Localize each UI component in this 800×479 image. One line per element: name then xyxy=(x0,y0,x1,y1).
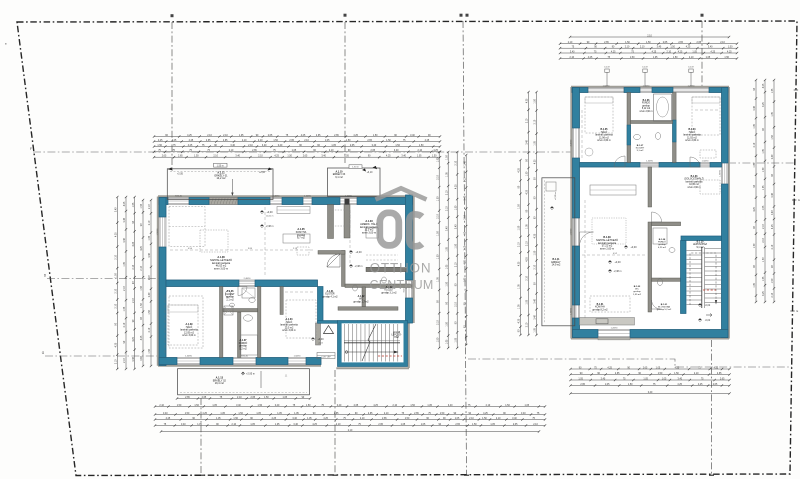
svg-text:3,40: 3,40 xyxy=(133,356,135,361)
svg-text:4,25: 4,25 xyxy=(373,405,378,407)
svg-text:1,50: 1,50 xyxy=(628,384,633,386)
svg-text:4,25: 4,25 xyxy=(116,342,118,347)
svg-text:4,25: 4,25 xyxy=(166,418,171,420)
svg-text:2,10: 2,10 xyxy=(763,237,765,242)
svg-text:2,10: 2,10 xyxy=(647,35,652,37)
svg-text:4,25: 4,25 xyxy=(433,150,438,152)
svg-text:1,05: 1,05 xyxy=(212,405,217,407)
svg-text:4,25: 4,25 xyxy=(141,335,143,340)
svg-text:3,40: 3,40 xyxy=(521,413,526,415)
svg-text:2,10: 2,10 xyxy=(437,214,439,219)
svg-text:3,40: 3,40 xyxy=(570,51,575,53)
svg-text:+0,00: +0,00 xyxy=(355,251,362,254)
svg-text:2,65: 2,65 xyxy=(368,413,373,415)
svg-text:1,50: 1,50 xyxy=(455,243,457,248)
svg-text:1,50: 1,50 xyxy=(472,424,477,426)
svg-text:3,40: 3,40 xyxy=(372,145,377,147)
svg-text:2,10: 2,10 xyxy=(329,150,334,152)
svg-text:4,25: 4,25 xyxy=(172,140,177,142)
svg-text:14x19: 14x19 xyxy=(642,67,648,69)
svg-text:2,10: 2,10 xyxy=(568,42,573,44)
svg-text:-2,38 m: -2,38 m xyxy=(265,225,273,228)
svg-text:1,05: 1,05 xyxy=(256,413,261,415)
svg-text:1,05: 1,05 xyxy=(294,413,299,415)
svg-text:1,50 m: 1,50 m xyxy=(217,165,224,167)
svg-text:1,50: 1,50 xyxy=(149,348,151,353)
svg-text:4,25: 4,25 xyxy=(763,83,765,88)
svg-text:CENTRUM: CENTRUM xyxy=(370,278,434,292)
svg-text:4,25: 4,25 xyxy=(202,413,207,415)
svg-text:2,10: 2,10 xyxy=(223,135,228,137)
svg-text:4,25: 4,25 xyxy=(519,318,521,323)
svg-text:1,05: 1,05 xyxy=(149,235,151,240)
svg-text:2,65: 2,65 xyxy=(354,405,359,407)
svg-text:4,25: 4,25 xyxy=(158,140,163,142)
svg-text:2,10: 2,10 xyxy=(360,418,365,420)
svg-text:1,50: 1,50 xyxy=(346,140,351,142)
svg-text:1,05: 1,05 xyxy=(490,424,495,426)
svg-text:1,05: 1,05 xyxy=(275,424,280,426)
svg-text:2,65: 2,65 xyxy=(202,397,207,399)
svg-text:2,10: 2,10 xyxy=(229,150,234,152)
svg-text:14x19: 14x19 xyxy=(688,67,694,69)
svg-text:1,50: 1,50 xyxy=(238,413,243,415)
svg-text:2,10: 2,10 xyxy=(464,245,466,250)
svg-text:2,10: 2,10 xyxy=(116,254,118,259)
svg-text:1,05: 1,05 xyxy=(763,205,765,210)
svg-text:2,10: 2,10 xyxy=(133,298,135,303)
svg-text:-0,02: -0,02 xyxy=(705,304,711,307)
svg-text:1,50: 1,50 xyxy=(419,145,424,147)
svg-text:3,40: 3,40 xyxy=(448,405,453,407)
svg-text:2,10: 2,10 xyxy=(455,160,457,165)
svg-text:2,10: 2,10 xyxy=(141,265,143,270)
svg-text:1,50: 1,50 xyxy=(233,418,238,420)
svg-text:2,10: 2,10 xyxy=(763,224,765,229)
svg-text:1,50: 1,50 xyxy=(763,167,765,172)
svg-text:2,65: 2,65 xyxy=(223,140,228,142)
svg-text:2,65: 2,65 xyxy=(252,150,257,152)
svg-text:2,10: 2,10 xyxy=(116,288,118,293)
svg-text:4,25: 4,25 xyxy=(686,47,691,49)
svg-text:3,40: 3,40 xyxy=(708,47,713,49)
svg-text:1,05: 1,05 xyxy=(446,339,448,344)
svg-text:2,65: 2,65 xyxy=(185,397,190,399)
svg-text:3,40: 3,40 xyxy=(464,195,466,200)
svg-text:+2,95 m: +2,95 m xyxy=(246,372,255,375)
svg-text:1,50/90: 1,50/90 xyxy=(157,228,159,236)
svg-text:1,50: 1,50 xyxy=(437,196,439,201)
svg-text:2,10: 2,10 xyxy=(116,359,118,364)
svg-text:2,10: 2,10 xyxy=(348,430,353,432)
svg-text:1,50: 1,50 xyxy=(763,257,765,262)
svg-text:1,50: 1,50 xyxy=(395,145,400,147)
svg-text:2,10: 2,10 xyxy=(535,264,537,269)
svg-text:1,05: 1,05 xyxy=(455,337,457,342)
svg-text:2,65: 2,65 xyxy=(643,367,648,369)
svg-text:1,50: 1,50 xyxy=(446,281,448,286)
svg-text:1,50: 1,50 xyxy=(258,405,263,407)
svg-text:2,10: 2,10 xyxy=(772,244,774,249)
svg-text:1,50: 1,50 xyxy=(527,171,529,176)
svg-text:1,50: 1,50 xyxy=(670,47,675,49)
svg-text:4,25: 4,25 xyxy=(772,224,774,229)
svg-text:1,50: 1,50 xyxy=(505,405,510,407)
svg-text:3,40: 3,40 xyxy=(527,139,529,144)
svg-text:4,25: 4,25 xyxy=(272,418,277,420)
svg-text:+0,00: +0,00 xyxy=(614,261,621,264)
svg-text:2,65: 2,65 xyxy=(334,413,339,415)
svg-text:4,25: 4,25 xyxy=(519,261,521,266)
svg-text:1,50/90: 1,50/90 xyxy=(702,161,710,163)
svg-text:2,10: 2,10 xyxy=(418,150,423,152)
svg-text:4,25: 4,25 xyxy=(133,336,135,341)
svg-text:1,05: 1,05 xyxy=(706,57,711,59)
svg-text:3,40: 3,40 xyxy=(149,252,151,257)
svg-text:2,65: 2,65 xyxy=(316,135,321,137)
svg-text:-0,02: -0,02 xyxy=(705,319,711,322)
svg-text:3,40: 3,40 xyxy=(262,145,267,147)
svg-text:3,40: 3,40 xyxy=(772,154,774,159)
svg-text:4,25: 4,25 xyxy=(188,145,193,147)
svg-text:4,25: 4,25 xyxy=(763,291,765,296)
svg-text:4,25: 4,25 xyxy=(187,135,192,137)
svg-text:2,10: 2,10 xyxy=(149,220,151,225)
svg-text:3,40: 3,40 xyxy=(124,237,126,242)
svg-text:2,10: 2,10 xyxy=(464,177,466,182)
svg-text:2,65: 2,65 xyxy=(678,42,683,44)
svg-text:4,25: 4,25 xyxy=(323,418,328,420)
svg-text:1,05: 1,05 xyxy=(527,224,529,229)
svg-text:1,05: 1,05 xyxy=(216,418,221,420)
svg-text:1,50: 1,50 xyxy=(157,145,162,147)
svg-text:2,40/90: 2,40/90 xyxy=(273,196,281,198)
svg-text:1,50: 1,50 xyxy=(141,203,143,208)
svg-text:3,40: 3,40 xyxy=(163,413,168,415)
svg-text:2,10: 2,10 xyxy=(527,322,529,327)
svg-text:-2,38 m: -2,38 m xyxy=(613,270,621,273)
svg-text:2,10: 2,10 xyxy=(237,397,242,399)
svg-text:4,25: 4,25 xyxy=(124,201,126,206)
svg-text:1,50: 1,50 xyxy=(446,155,448,160)
svg-text:+2,95: +2,95 xyxy=(177,174,184,176)
svg-text:4,25: 4,25 xyxy=(425,140,430,142)
svg-text:±0,00 m: ±0,00 m xyxy=(266,216,274,218)
svg-text:4,25: 4,25 xyxy=(527,98,529,103)
svg-text:1,05: 1,05 xyxy=(220,413,225,415)
svg-text:1,50/90: 1,50/90 xyxy=(185,356,193,358)
svg-text:1,05: 1,05 xyxy=(754,123,756,128)
svg-text:2,65: 2,65 xyxy=(162,156,167,158)
svg-text:2,10: 2,10 xyxy=(149,204,151,209)
svg-text:1,05: 1,05 xyxy=(446,264,448,269)
svg-text:1,50: 1,50 xyxy=(405,418,410,420)
svg-text:+0,00: +0,00 xyxy=(630,246,637,249)
svg-text:2,10: 2,10 xyxy=(248,145,253,147)
svg-text:2,10: 2,10 xyxy=(519,242,521,247)
svg-text:A.1.07FÜRDŐgreslap5,2 m2: A.1.07FÜRDŐgreslap5,2 m2 xyxy=(239,339,248,350)
svg-text:1,50: 1,50 xyxy=(482,418,487,420)
svg-text:2,10: 2,10 xyxy=(527,118,529,123)
svg-text:2,65: 2,65 xyxy=(206,140,211,142)
svg-text:E: E xyxy=(797,309,799,313)
svg-text:1,05: 1,05 xyxy=(437,277,439,282)
svg-text:1,50: 1,50 xyxy=(306,405,311,407)
svg-text:1,05: 1,05 xyxy=(464,277,466,282)
svg-text:2,10: 2,10 xyxy=(124,322,126,327)
svg-text:1,50/90: 1,50/90 xyxy=(603,86,611,88)
svg-text:1,05: 1,05 xyxy=(772,88,774,93)
svg-text:4,25: 4,25 xyxy=(607,367,612,369)
svg-text:2,10: 2,10 xyxy=(446,190,448,195)
svg-text:1,05: 1,05 xyxy=(250,424,255,426)
svg-text:2,10: 2,10 xyxy=(124,358,126,363)
svg-text:2,10: 2,10 xyxy=(667,51,672,53)
svg-text:1,50: 1,50 xyxy=(519,204,521,209)
svg-text:4,25: 4,25 xyxy=(678,51,683,53)
svg-text:1,05: 1,05 xyxy=(763,276,765,281)
svg-text:4,25: 4,25 xyxy=(455,184,457,189)
svg-text:2,10: 2,10 xyxy=(207,135,212,137)
svg-text:1,50: 1,50 xyxy=(194,156,199,158)
svg-text:2,10: 2,10 xyxy=(625,47,630,49)
svg-text:4,25: 4,25 xyxy=(116,232,118,237)
svg-text:1,20/90: 1,20/90 xyxy=(688,86,696,88)
svg-text:2,65: 2,65 xyxy=(268,135,273,137)
svg-text:2,10: 2,10 xyxy=(772,292,774,297)
svg-text:2,10: 2,10 xyxy=(336,424,341,426)
svg-text:1,05: 1,05 xyxy=(417,156,422,158)
svg-text:3,40: 3,40 xyxy=(648,392,653,394)
svg-text:2,65: 2,65 xyxy=(382,418,387,420)
svg-text:2,10: 2,10 xyxy=(116,303,118,308)
svg-text:3,40: 3,40 xyxy=(464,160,466,165)
svg-text:2,65: 2,65 xyxy=(289,140,294,142)
svg-text:2,10: 2,10 xyxy=(437,175,439,180)
svg-text:1,50: 1,50 xyxy=(754,243,756,248)
svg-text:3,40: 3,40 xyxy=(235,156,240,158)
svg-text:OTTHON: OTTHON xyxy=(370,260,432,275)
svg-text:1,50: 1,50 xyxy=(373,135,378,137)
svg-text:4,25: 4,25 xyxy=(763,102,765,107)
svg-text:1,05: 1,05 xyxy=(535,140,537,145)
svg-text:2,65: 2,65 xyxy=(251,397,256,399)
svg-text:2,65: 2,65 xyxy=(334,135,339,137)
svg-text:1,05: 1,05 xyxy=(446,172,448,177)
svg-text:3,40: 3,40 xyxy=(678,378,683,380)
svg-text:2,10: 2,10 xyxy=(535,119,537,124)
svg-text:4,25: 4,25 xyxy=(588,57,593,59)
svg-text:2,10: 2,10 xyxy=(258,156,263,158)
svg-text:1,50: 1,50 xyxy=(437,254,439,259)
svg-text:1,05: 1,05 xyxy=(763,148,765,153)
svg-text:1,50: 1,50 xyxy=(446,321,448,326)
svg-text:1,50: 1,50 xyxy=(728,47,733,49)
svg-text:2,65: 2,65 xyxy=(350,145,355,147)
svg-text:1,05: 1,05 xyxy=(754,162,756,167)
svg-text:1,50/90: 1,50/90 xyxy=(570,228,572,236)
svg-text:+2,95: +2,95 xyxy=(259,172,266,174)
svg-text:3,40: 3,40 xyxy=(124,217,126,222)
svg-text:2,10: 2,10 xyxy=(133,264,135,269)
svg-text:2,65: 2,65 xyxy=(720,378,725,380)
svg-text:4,25: 4,25 xyxy=(677,384,682,386)
svg-text:3,40: 3,40 xyxy=(535,314,537,319)
svg-text:F: F xyxy=(30,147,32,151)
svg-text:1,05: 1,05 xyxy=(344,156,349,158)
svg-text:2,10: 2,10 xyxy=(384,413,389,415)
svg-text:1,50/90: 1,50/90 xyxy=(570,307,572,315)
svg-text:1,50: 1,50 xyxy=(264,397,269,399)
svg-text:1,05: 1,05 xyxy=(325,140,330,142)
svg-text:1,50: 1,50 xyxy=(772,134,774,139)
svg-text:2,10: 2,10 xyxy=(720,42,725,44)
svg-text:1,50: 1,50 xyxy=(185,413,190,415)
svg-text:3,40: 3,40 xyxy=(293,424,298,426)
svg-text:2,65: 2,65 xyxy=(371,150,376,152)
svg-text:1,50: 1,50 xyxy=(673,57,678,59)
svg-text:3,40: 3,40 xyxy=(772,192,774,197)
svg-text:4,25: 4,25 xyxy=(711,51,716,53)
svg-text:+3,10: +3,10 xyxy=(367,172,374,174)
svg-text:2,10: 2,10 xyxy=(232,424,237,426)
svg-text:2,10: 2,10 xyxy=(689,57,694,59)
svg-text:1,50: 1,50 xyxy=(273,140,278,142)
svg-text:4,25: 4,25 xyxy=(611,51,616,53)
svg-text:3,40: 3,40 xyxy=(141,356,143,361)
svg-text:90/2,40: 90/2,40 xyxy=(241,356,249,358)
svg-text:2,10: 2,10 xyxy=(527,241,529,246)
svg-text:2,65: 2,65 xyxy=(178,156,183,158)
svg-text:4,25: 4,25 xyxy=(527,189,529,194)
svg-text:+0,00: +0,00 xyxy=(317,338,324,341)
svg-text:4,25: 4,25 xyxy=(386,156,391,158)
svg-text:1,50: 1,50 xyxy=(410,405,415,407)
svg-text:4,25: 4,25 xyxy=(483,413,488,415)
svg-text:4,25: 4,25 xyxy=(527,257,529,262)
svg-text:1,05: 1,05 xyxy=(283,397,288,399)
svg-text:1,50: 1,50 xyxy=(177,405,182,407)
svg-text:2,10: 2,10 xyxy=(640,47,645,49)
svg-text:2,10: 2,10 xyxy=(437,320,439,325)
svg-text:3,40: 3,40 xyxy=(657,47,662,49)
svg-text:2,65: 2,65 xyxy=(717,373,722,375)
svg-text:1,50 m: 1,50 m xyxy=(352,167,359,169)
svg-text:2,10: 2,10 xyxy=(149,275,151,280)
svg-text:4,25: 4,25 xyxy=(535,159,537,164)
svg-text:1,05: 1,05 xyxy=(653,57,658,59)
svg-text:1,50: 1,50 xyxy=(772,278,774,283)
svg-text:2,65: 2,65 xyxy=(713,384,718,386)
svg-text:1,05: 1,05 xyxy=(133,202,135,207)
svg-text:1,50: 1,50 xyxy=(455,205,457,210)
svg-text:1,05: 1,05 xyxy=(643,378,648,380)
svg-text:4,25: 4,25 xyxy=(519,167,521,172)
svg-text:2,10: 2,10 xyxy=(754,142,756,147)
svg-text:+2,95 m: +2,95 m xyxy=(555,192,557,200)
svg-text:1,05: 1,05 xyxy=(527,299,529,304)
svg-text:2,10: 2,10 xyxy=(570,57,575,59)
svg-text:2,65: 2,65 xyxy=(580,384,585,386)
svg-text:1,05: 1,05 xyxy=(427,405,432,407)
svg-text:1,05: 1,05 xyxy=(277,413,282,415)
svg-text:2,10: 2,10 xyxy=(446,206,448,211)
svg-text:2,10: 2,10 xyxy=(242,140,247,142)
svg-text:1,05: 1,05 xyxy=(525,405,530,407)
svg-text:1,05: 1,05 xyxy=(578,378,583,380)
svg-text:1,50: 1,50 xyxy=(437,337,439,342)
svg-text:4,25: 4,25 xyxy=(141,245,143,250)
svg-text:1,05: 1,05 xyxy=(124,306,126,311)
svg-text:1,50: 1,50 xyxy=(141,303,143,308)
svg-text:3,40: 3,40 xyxy=(446,226,448,231)
svg-text:1,50: 1,50 xyxy=(287,156,292,158)
svg-text:1,50: 1,50 xyxy=(149,309,151,314)
svg-text:2,10: 2,10 xyxy=(496,418,501,420)
svg-text:1,50: 1,50 xyxy=(519,225,521,230)
svg-text:1,50: 1,50 xyxy=(630,57,635,59)
svg-text:2,10: 2,10 xyxy=(694,373,699,375)
svg-text:4,25: 4,25 xyxy=(714,367,719,369)
svg-text:3,40: 3,40 xyxy=(321,156,326,158)
svg-text:2,10: 2,10 xyxy=(304,140,309,142)
svg-text:2,40/90: 2,40/90 xyxy=(570,139,572,147)
svg-text:1,50: 1,50 xyxy=(535,250,537,255)
svg-text:3,40: 3,40 xyxy=(754,105,756,110)
svg-text:2,65: 2,65 xyxy=(378,424,383,426)
svg-text:3,40: 3,40 xyxy=(337,405,342,407)
svg-text:3,40: 3,40 xyxy=(772,210,774,215)
svg-text:3,40: 3,40 xyxy=(394,150,399,152)
svg-text:2,65: 2,65 xyxy=(697,42,702,44)
svg-text:1,50: 1,50 xyxy=(658,373,663,375)
svg-text:1,05: 1,05 xyxy=(656,367,661,369)
svg-text:2,65: 2,65 xyxy=(513,424,518,426)
svg-text:1,50: 1,50 xyxy=(646,42,651,44)
svg-text:1,50: 1,50 xyxy=(674,373,679,375)
svg-text:1,50: 1,50 xyxy=(724,57,729,59)
svg-text:1,50: 1,50 xyxy=(141,285,143,290)
svg-text:1,05: 1,05 xyxy=(772,111,774,116)
svg-text:2,10: 2,10 xyxy=(533,424,538,426)
svg-text:2,65: 2,65 xyxy=(604,42,609,44)
svg-text:3,40: 3,40 xyxy=(236,405,241,407)
svg-text:4,25: 4,25 xyxy=(133,241,135,246)
svg-text:2,65: 2,65 xyxy=(615,373,620,375)
svg-text:3,40: 3,40 xyxy=(230,145,235,147)
svg-text:1,05: 1,05 xyxy=(446,246,448,251)
svg-text:1,50: 1,50 xyxy=(437,231,439,236)
svg-text:-0,02: -0,02 xyxy=(318,343,324,345)
svg-text:3,40: 3,40 xyxy=(116,207,118,212)
svg-text:1,50/90: 1,50/90 xyxy=(719,169,721,177)
svg-text:1,05: 1,05 xyxy=(519,304,521,309)
svg-text:2,10: 2,10 xyxy=(258,140,263,142)
svg-text:2,65: 2,65 xyxy=(367,140,372,142)
svg-text:A.1.03AMERIK. HÁLÓlaminált par: A.1.03AMERIK. HÁLÓlaminált parketta11,3 … xyxy=(360,220,379,235)
svg-text:1,50: 1,50 xyxy=(437,157,439,162)
svg-text:3,40: 3,40 xyxy=(601,378,606,380)
svg-text:14x19: 14x19 xyxy=(604,67,610,69)
svg-text:4,25: 4,25 xyxy=(754,206,756,211)
svg-text:1,50: 1,50 xyxy=(625,42,630,44)
svg-text:4,25: 4,25 xyxy=(464,259,466,264)
svg-text:1,50: 1,50 xyxy=(386,140,391,142)
svg-text:1,20/90: 1,20/90 xyxy=(304,196,312,198)
svg-text:1,05: 1,05 xyxy=(124,261,126,266)
svg-text:4,25: 4,25 xyxy=(698,384,703,386)
svg-text:3,40: 3,40 xyxy=(275,405,280,407)
